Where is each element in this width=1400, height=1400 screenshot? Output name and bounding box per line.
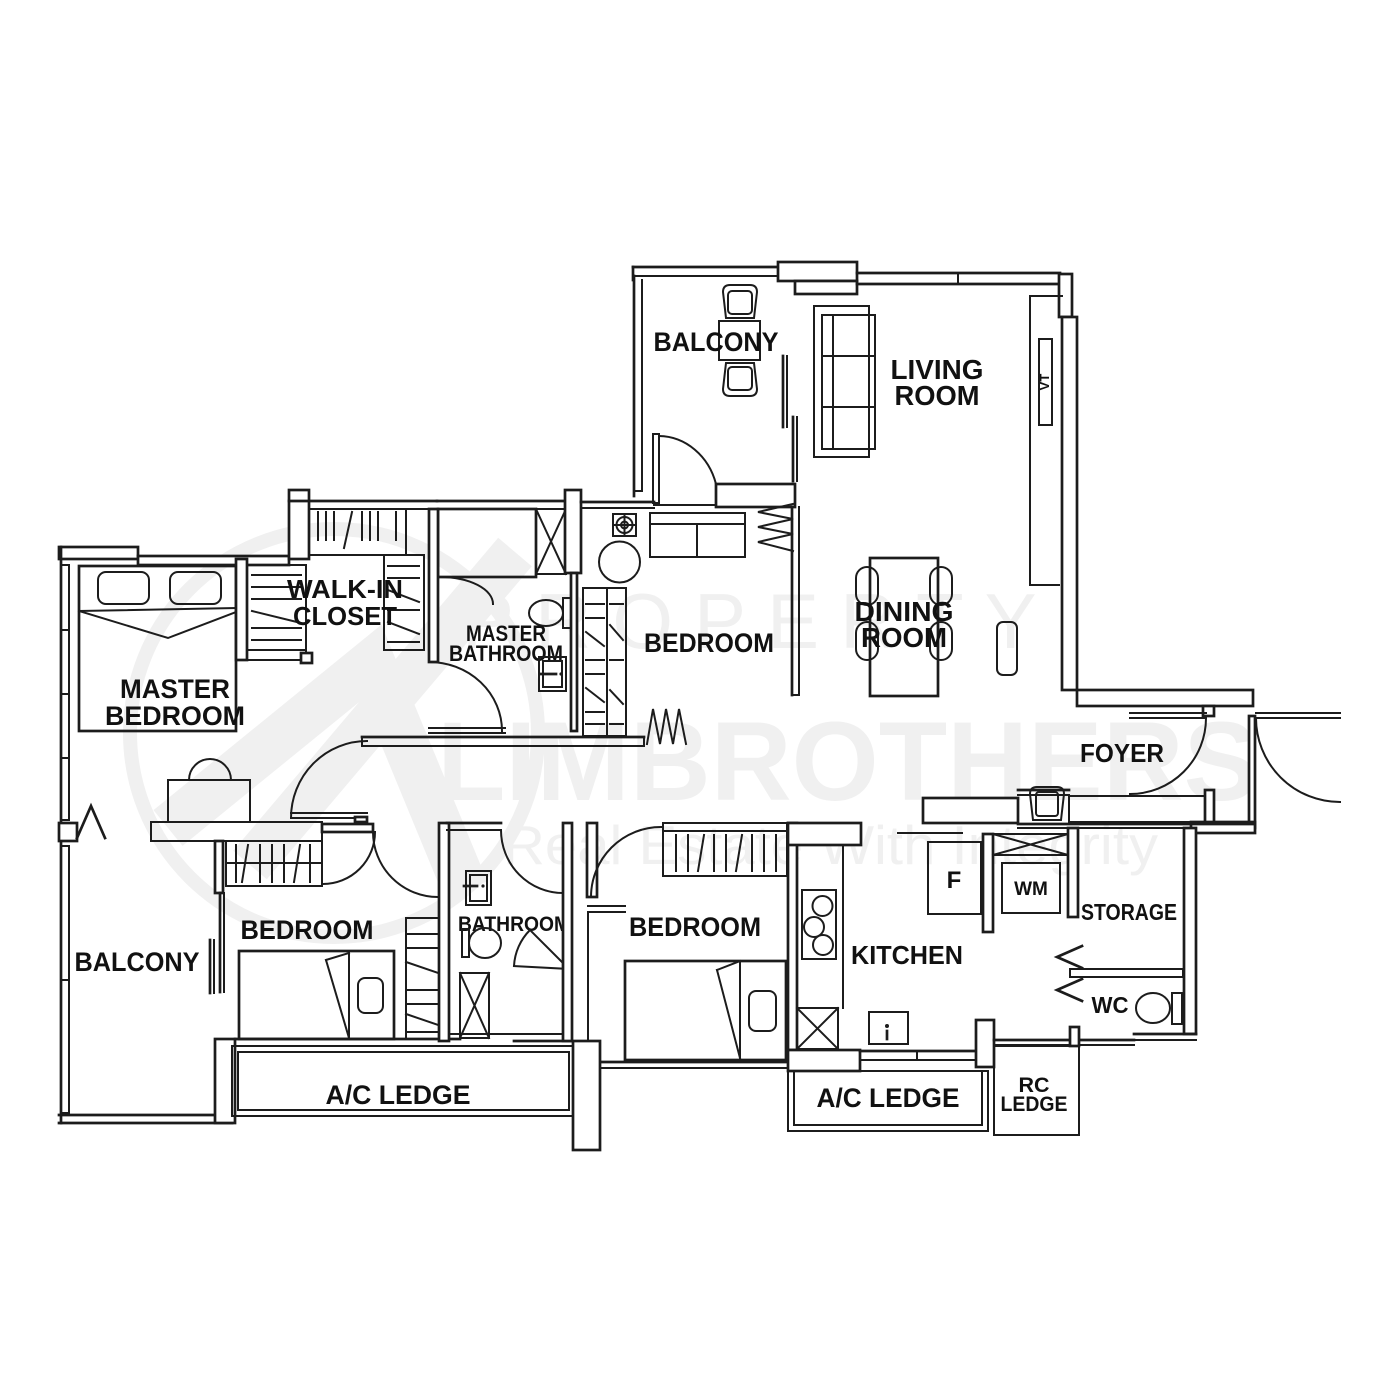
svg-text:A/C LEDGE: A/C LEDGE	[326, 1080, 471, 1110]
svg-text:BEDROOM: BEDROOM	[241, 915, 374, 945]
svg-text:KITCHEN: KITCHEN	[851, 940, 963, 970]
svg-text:BEDROOM: BEDROOM	[629, 912, 761, 942]
svg-text:A/C LEDGE: A/C LEDGE	[817, 1083, 960, 1113]
svg-text:F: F	[947, 867, 962, 894]
svg-text:BALCONY: BALCONY	[75, 947, 200, 977]
svg-text:LEDGE: LEDGE	[1001, 1093, 1068, 1116]
svg-text:BEDROOM: BEDROOM	[644, 628, 774, 658]
svg-text:BATHROOM: BATHROOM	[449, 641, 563, 666]
svg-text:VT: VT	[1037, 374, 1052, 391]
svg-text:WM: WM	[1014, 879, 1048, 900]
svg-text:ROOM: ROOM	[861, 622, 947, 653]
svg-text:BALCONY: BALCONY	[654, 327, 779, 357]
svg-text:MASTER: MASTER	[120, 674, 230, 704]
svg-text:WC: WC	[1092, 992, 1129, 1018]
svg-text:BEDROOM: BEDROOM	[105, 701, 245, 731]
svg-text:ROOM: ROOM	[895, 380, 980, 411]
svg-text:WALK-IN: WALK-IN	[287, 574, 403, 604]
svg-text:CLOSET: CLOSET	[293, 601, 397, 631]
svg-text:FOYER: FOYER	[1080, 738, 1164, 768]
svg-text:STORAGE: STORAGE	[1081, 899, 1177, 925]
